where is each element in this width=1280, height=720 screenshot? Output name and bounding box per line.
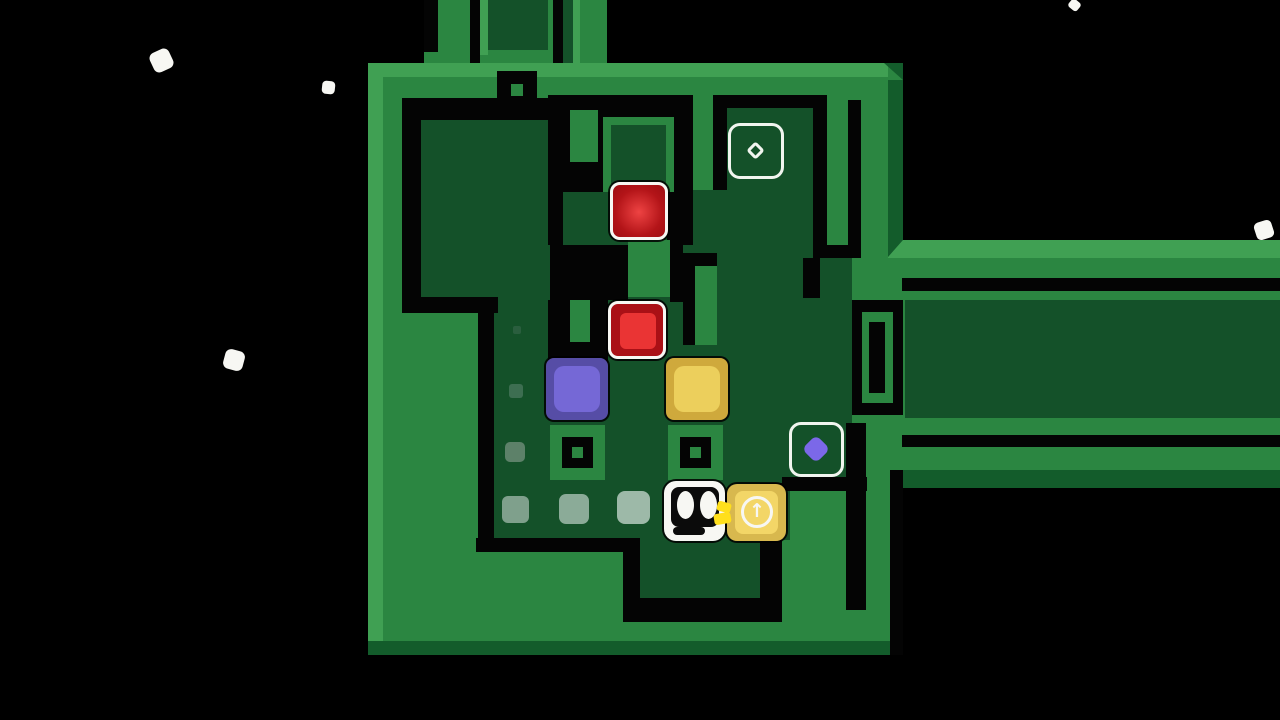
game-viewport: ↑ xyxy=(0,0,1280,720)
bevel-light xyxy=(573,0,580,63)
floor-right-corridor xyxy=(905,300,1280,418)
wall-groove xyxy=(846,423,866,610)
slot-structure-inner xyxy=(869,322,885,393)
pit-socket-dot xyxy=(511,84,523,96)
star-particle xyxy=(148,47,176,75)
yellow-block-inner xyxy=(674,366,720,412)
movement-trail xyxy=(617,491,650,524)
star-particle xyxy=(321,80,335,94)
wall-groove xyxy=(476,538,640,552)
movement-trail xyxy=(502,496,529,523)
bevel-dark-armbottom xyxy=(897,470,1280,488)
wall-groove xyxy=(813,100,827,245)
bevel-corner xyxy=(368,641,383,655)
movement-trail xyxy=(559,494,589,524)
wall-groove xyxy=(713,95,827,108)
wall-hook-green xyxy=(695,266,717,345)
wall-block xyxy=(550,245,628,300)
slot-structure-green xyxy=(570,300,590,342)
wall-groove xyxy=(424,0,438,52)
bevel-light-left xyxy=(368,63,383,641)
wall-groove xyxy=(478,297,494,552)
wall-groove-arm xyxy=(902,435,1280,447)
wall-groove-arm xyxy=(902,278,1280,291)
star-particle xyxy=(222,348,246,372)
purple-block-inner xyxy=(554,366,600,412)
wall-groove xyxy=(402,98,421,313)
pit-socket-dot xyxy=(690,447,701,458)
floor-upper-left xyxy=(421,120,550,297)
wall-groove xyxy=(548,192,563,245)
red-block-inner xyxy=(620,313,656,349)
wall-groove xyxy=(713,95,727,190)
bevel-light xyxy=(480,0,488,55)
bevel-dark-right xyxy=(888,80,903,240)
wall-groove xyxy=(470,0,480,63)
star-particle xyxy=(1253,219,1276,242)
player-eye xyxy=(677,491,694,519)
bevel-light-top xyxy=(368,63,888,77)
wall-groove xyxy=(782,477,867,491)
bevel-light-arm xyxy=(888,240,1280,258)
wall-stub-green xyxy=(570,110,598,162)
player-mouth xyxy=(673,527,705,535)
wall-island-green xyxy=(628,240,670,297)
movement-trail xyxy=(505,442,525,462)
pit-socket-dot xyxy=(572,447,583,458)
arrow-block-arrow-icon: ↑ xyxy=(741,495,773,527)
movement-trail xyxy=(513,326,521,334)
wall-groove xyxy=(803,258,820,298)
floor-inset-top xyxy=(488,0,548,50)
red-block-glow[interactable] xyxy=(610,182,668,240)
movement-trail xyxy=(509,384,523,398)
cell-ring-floor xyxy=(611,125,666,184)
bevel-dark-bottom xyxy=(382,641,890,655)
wall-groove xyxy=(813,245,861,258)
void-patch xyxy=(890,470,903,655)
wall-groove xyxy=(670,240,683,302)
wall-groove xyxy=(848,100,861,258)
star-particle xyxy=(1067,0,1082,12)
wall-groove xyxy=(623,538,640,622)
